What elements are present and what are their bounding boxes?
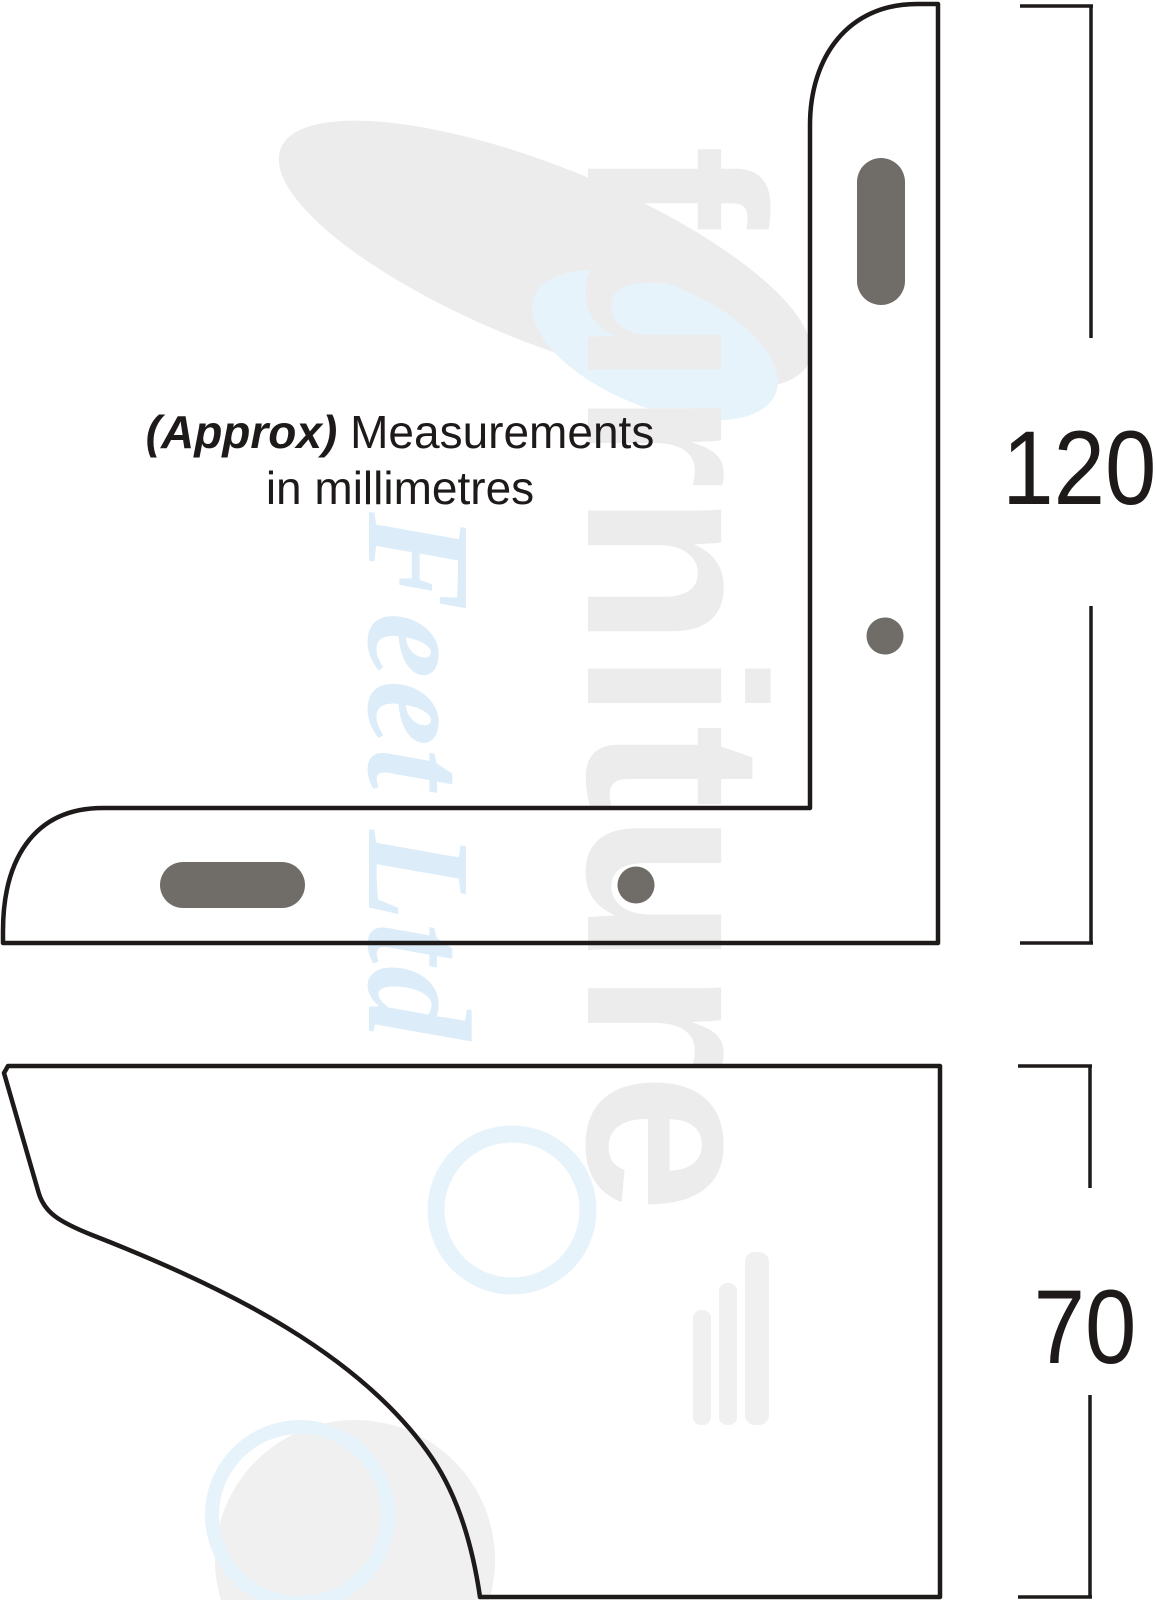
horizontal-arm-slot bbox=[160, 862, 305, 908]
vertical-arm-slot bbox=[857, 158, 905, 305]
measurement-note-line1: (Approx) Measurements bbox=[120, 404, 680, 460]
dimension-label-70: 70 bbox=[1010, 1275, 1156, 1380]
measurement-note: (Approx) Measurements in millimetres bbox=[120, 404, 680, 516]
measurement-note-approx: (Approx) bbox=[146, 406, 338, 458]
bracket-technical-drawing bbox=[0, 0, 1156, 1600]
dimension-label-120: 120 bbox=[1002, 416, 1152, 521]
horizontal-arm-screw-hole bbox=[618, 867, 655, 904]
vertical-arm-screw-hole bbox=[867, 618, 904, 655]
bracket-diagram-canvas: furniture Feet Ltd (Approx) Me bbox=[0, 0, 1156, 1600]
bracket-side-view-outline bbox=[4, 1066, 940, 1597]
measurement-note-line2: in millimetres bbox=[120, 460, 680, 516]
measurement-note-rest: Measurements bbox=[337, 406, 654, 458]
